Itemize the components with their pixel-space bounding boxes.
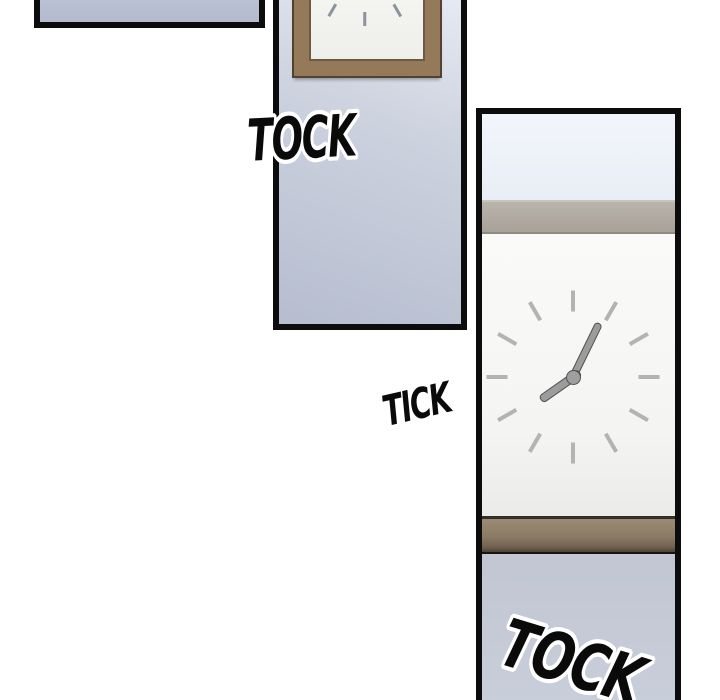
clock-tick	[629, 408, 649, 422]
clock-tick	[497, 408, 517, 422]
top-shelf	[482, 200, 675, 234]
framed-clock-dial	[309, 0, 425, 39]
clock-tick	[571, 291, 575, 312]
clock-tick	[497, 332, 517, 346]
comic-page: TOCK TICK TOCK	[0, 0, 720, 700]
clock-tick	[393, 4, 402, 17]
upper-wall	[482, 114, 675, 200]
framed-wall-clock	[294, 0, 440, 76]
clock-hub	[566, 370, 581, 385]
clock-tick	[487, 375, 508, 379]
panel-top-left	[34, 0, 265, 28]
clock-wall	[482, 234, 675, 516]
clock-tick	[528, 301, 542, 321]
clock-tick	[604, 301, 618, 321]
panel-wall-clock	[476, 108, 681, 700]
clock-tick	[528, 433, 542, 453]
clock-tick	[364, 12, 367, 26]
bottom-shelf	[482, 516, 675, 554]
clock-tick	[328, 4, 337, 17]
clock-tick	[639, 375, 660, 379]
clock-tick	[604, 433, 618, 453]
wall-clock-dial	[473, 277, 673, 477]
clock-tick	[571, 443, 575, 464]
clock-tick	[629, 332, 649, 346]
sfx-tock-top: TOCK	[246, 106, 357, 170]
sfx-tick: TICK	[379, 377, 454, 433]
framed-clock-face	[309, 0, 425, 61]
